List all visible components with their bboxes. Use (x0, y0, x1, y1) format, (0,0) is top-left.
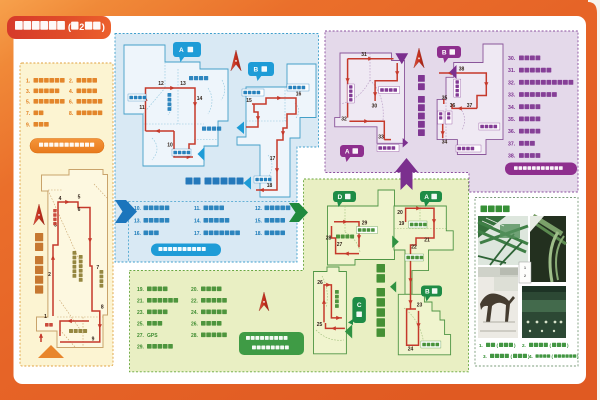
svg-text:37.: 37. (508, 141, 516, 147)
svg-text:2: 2 (524, 274, 526, 278)
svg-text:5.: 5. (26, 99, 31, 105)
svg-text:D: D (338, 194, 343, 201)
svg-text:9: 9 (92, 337, 95, 343)
svg-text:26: 26 (317, 280, 323, 286)
svg-text:38: 38 (459, 67, 465, 73)
svg-text:27: 27 (337, 242, 343, 248)
svg-text:17.: 17. (194, 231, 202, 237)
svg-text:2.: 2. (522, 343, 526, 348)
svg-text:18: 18 (267, 183, 273, 189)
svg-text:9.: 9. (26, 122, 31, 128)
svg-text:19: 19 (399, 221, 405, 227)
svg-text:1.: 1. (26, 78, 31, 84)
svg-text:19.: 19. (137, 287, 145, 293)
svg-text:36.: 36. (508, 129, 516, 135)
svg-text:11: 11 (139, 105, 145, 111)
svg-text:33.: 33. (508, 93, 516, 99)
svg-text:21: 21 (424, 238, 430, 244)
svg-text:18.: 18. (255, 231, 263, 237)
svg-text:28.: 28. (191, 333, 199, 339)
svg-text:4.: 4. (69, 89, 74, 95)
svg-text:30.: 30. (508, 56, 516, 62)
svg-text:16.: 16. (134, 231, 142, 237)
svg-text:4.: 4. (529, 354, 533, 359)
svg-text:30: 30 (372, 104, 378, 110)
svg-text:B: B (425, 289, 430, 296)
svg-text:2.: 2. (69, 78, 74, 84)
svg-text:A: A (424, 194, 429, 201)
svg-text:20: 20 (397, 210, 403, 216)
svg-text:1: 1 (44, 314, 47, 320)
svg-text:B: B (442, 50, 447, 57)
svg-text:31.: 31. (508, 68, 516, 74)
svg-text:3.: 3. (483, 354, 487, 359)
svg-text:7.: 7. (26, 111, 31, 117)
svg-text:22: 22 (411, 245, 417, 251)
svg-text:1.: 1. (479, 343, 483, 348)
svg-text:34: 34 (442, 140, 448, 146)
svg-text:17: 17 (270, 156, 276, 162)
svg-text:2: 2 (48, 272, 51, 278)
svg-text:15: 15 (246, 98, 252, 104)
svg-text:11.: 11. (194, 206, 201, 212)
svg-text:GPS: GPS (147, 333, 158, 339)
svg-text:14.: 14. (194, 218, 202, 224)
svg-text:38.: 38. (508, 154, 516, 160)
svg-text:28: 28 (326, 236, 332, 242)
svg-text:22.: 22. (191, 298, 199, 304)
svg-text:21.: 21. (137, 298, 145, 304)
svg-text:29: 29 (362, 221, 368, 227)
svg-text:2: 2 (79, 22, 84, 32)
svg-text:6.: 6. (69, 99, 74, 105)
svg-text:16: 16 (296, 92, 302, 98)
svg-text:): ) (102, 22, 105, 33)
svg-text:B: B (253, 67, 258, 74)
svg-text:3.: 3. (26, 89, 31, 95)
svg-text:A: A (345, 149, 350, 156)
svg-text:27.: 27. (137, 333, 145, 339)
svg-text:34.: 34. (508, 105, 516, 111)
svg-text:23: 23 (417, 303, 423, 309)
svg-text:32.: 32. (508, 80, 516, 86)
svg-text:20.: 20. (191, 287, 199, 293)
svg-text:7: 7 (96, 265, 99, 271)
svg-text:25.: 25. (137, 321, 145, 327)
svg-text:1: 1 (524, 266, 526, 270)
svg-text:5: 5 (78, 195, 81, 201)
svg-text:4: 4 (59, 196, 62, 202)
svg-text:24.: 24. (191, 310, 199, 316)
svg-text:33: 33 (378, 135, 384, 141)
svg-text:23.: 23. (137, 310, 145, 316)
svg-text:37: 37 (467, 103, 473, 109)
svg-text:8: 8 (101, 305, 104, 311)
svg-text:32: 32 (341, 117, 347, 123)
svg-text:12: 12 (158, 81, 164, 87)
svg-text:25: 25 (317, 322, 323, 328)
svg-text:6: 6 (78, 207, 81, 213)
svg-text:26.: 26. (191, 321, 199, 327)
svg-text:24: 24 (408, 347, 414, 353)
svg-text:14: 14 (197, 96, 203, 102)
svg-text:C: C (357, 302, 362, 309)
svg-text:35: 35 (442, 96, 448, 102)
svg-text:15.: 15. (255, 218, 263, 224)
svg-text:8.: 8. (69, 111, 74, 117)
svg-text:12.: 12. (255, 206, 263, 212)
svg-text:10: 10 (167, 143, 173, 149)
svg-text:36: 36 (450, 103, 456, 109)
svg-text:13.: 13. (134, 218, 142, 224)
svg-text:13: 13 (180, 81, 186, 87)
svg-text:A: A (179, 47, 184, 54)
svg-text:31: 31 (361, 52, 367, 58)
svg-text:35.: 35. (508, 117, 516, 123)
svg-text:29.: 29. (137, 344, 145, 350)
